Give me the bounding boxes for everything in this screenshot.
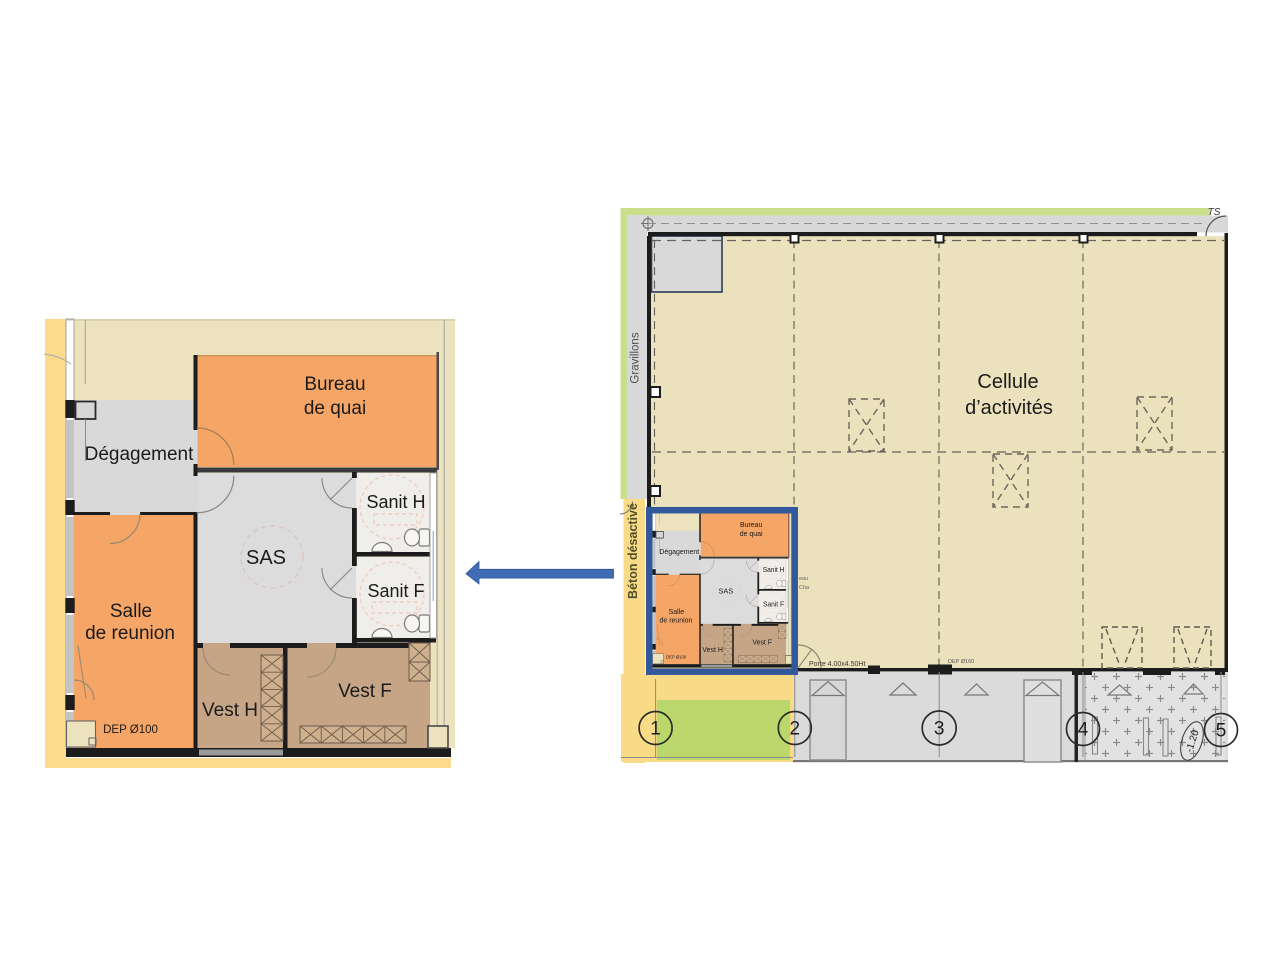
svg-text:5: 5	[1216, 721, 1227, 742]
svg-text:4: 4	[1078, 720, 1089, 741]
svg-text:3: 3	[934, 719, 945, 740]
svg-text:Gravillons: Gravillons	[630, 332, 642, 383]
svg-text:d’activités: d’activités	[965, 397, 1053, 419]
svg-text:1: 1	[650, 719, 661, 740]
svg-text:eau: eau	[799, 576, 808, 582]
svg-text:Cellule: Cellule	[977, 371, 1038, 393]
svg-text:TS: TS	[1208, 207, 1221, 218]
svg-text:Porte 4.00x4.50Ht: Porte 4.00x4.50Ht	[809, 661, 865, 668]
svg-text:Cha: Cha	[799, 585, 810, 591]
svg-text:Béton désactivé: Béton désactivé	[626, 503, 640, 599]
svg-text:2: 2	[790, 719, 801, 740]
svg-text:DEP Ø160: DEP Ø160	[948, 659, 974, 665]
